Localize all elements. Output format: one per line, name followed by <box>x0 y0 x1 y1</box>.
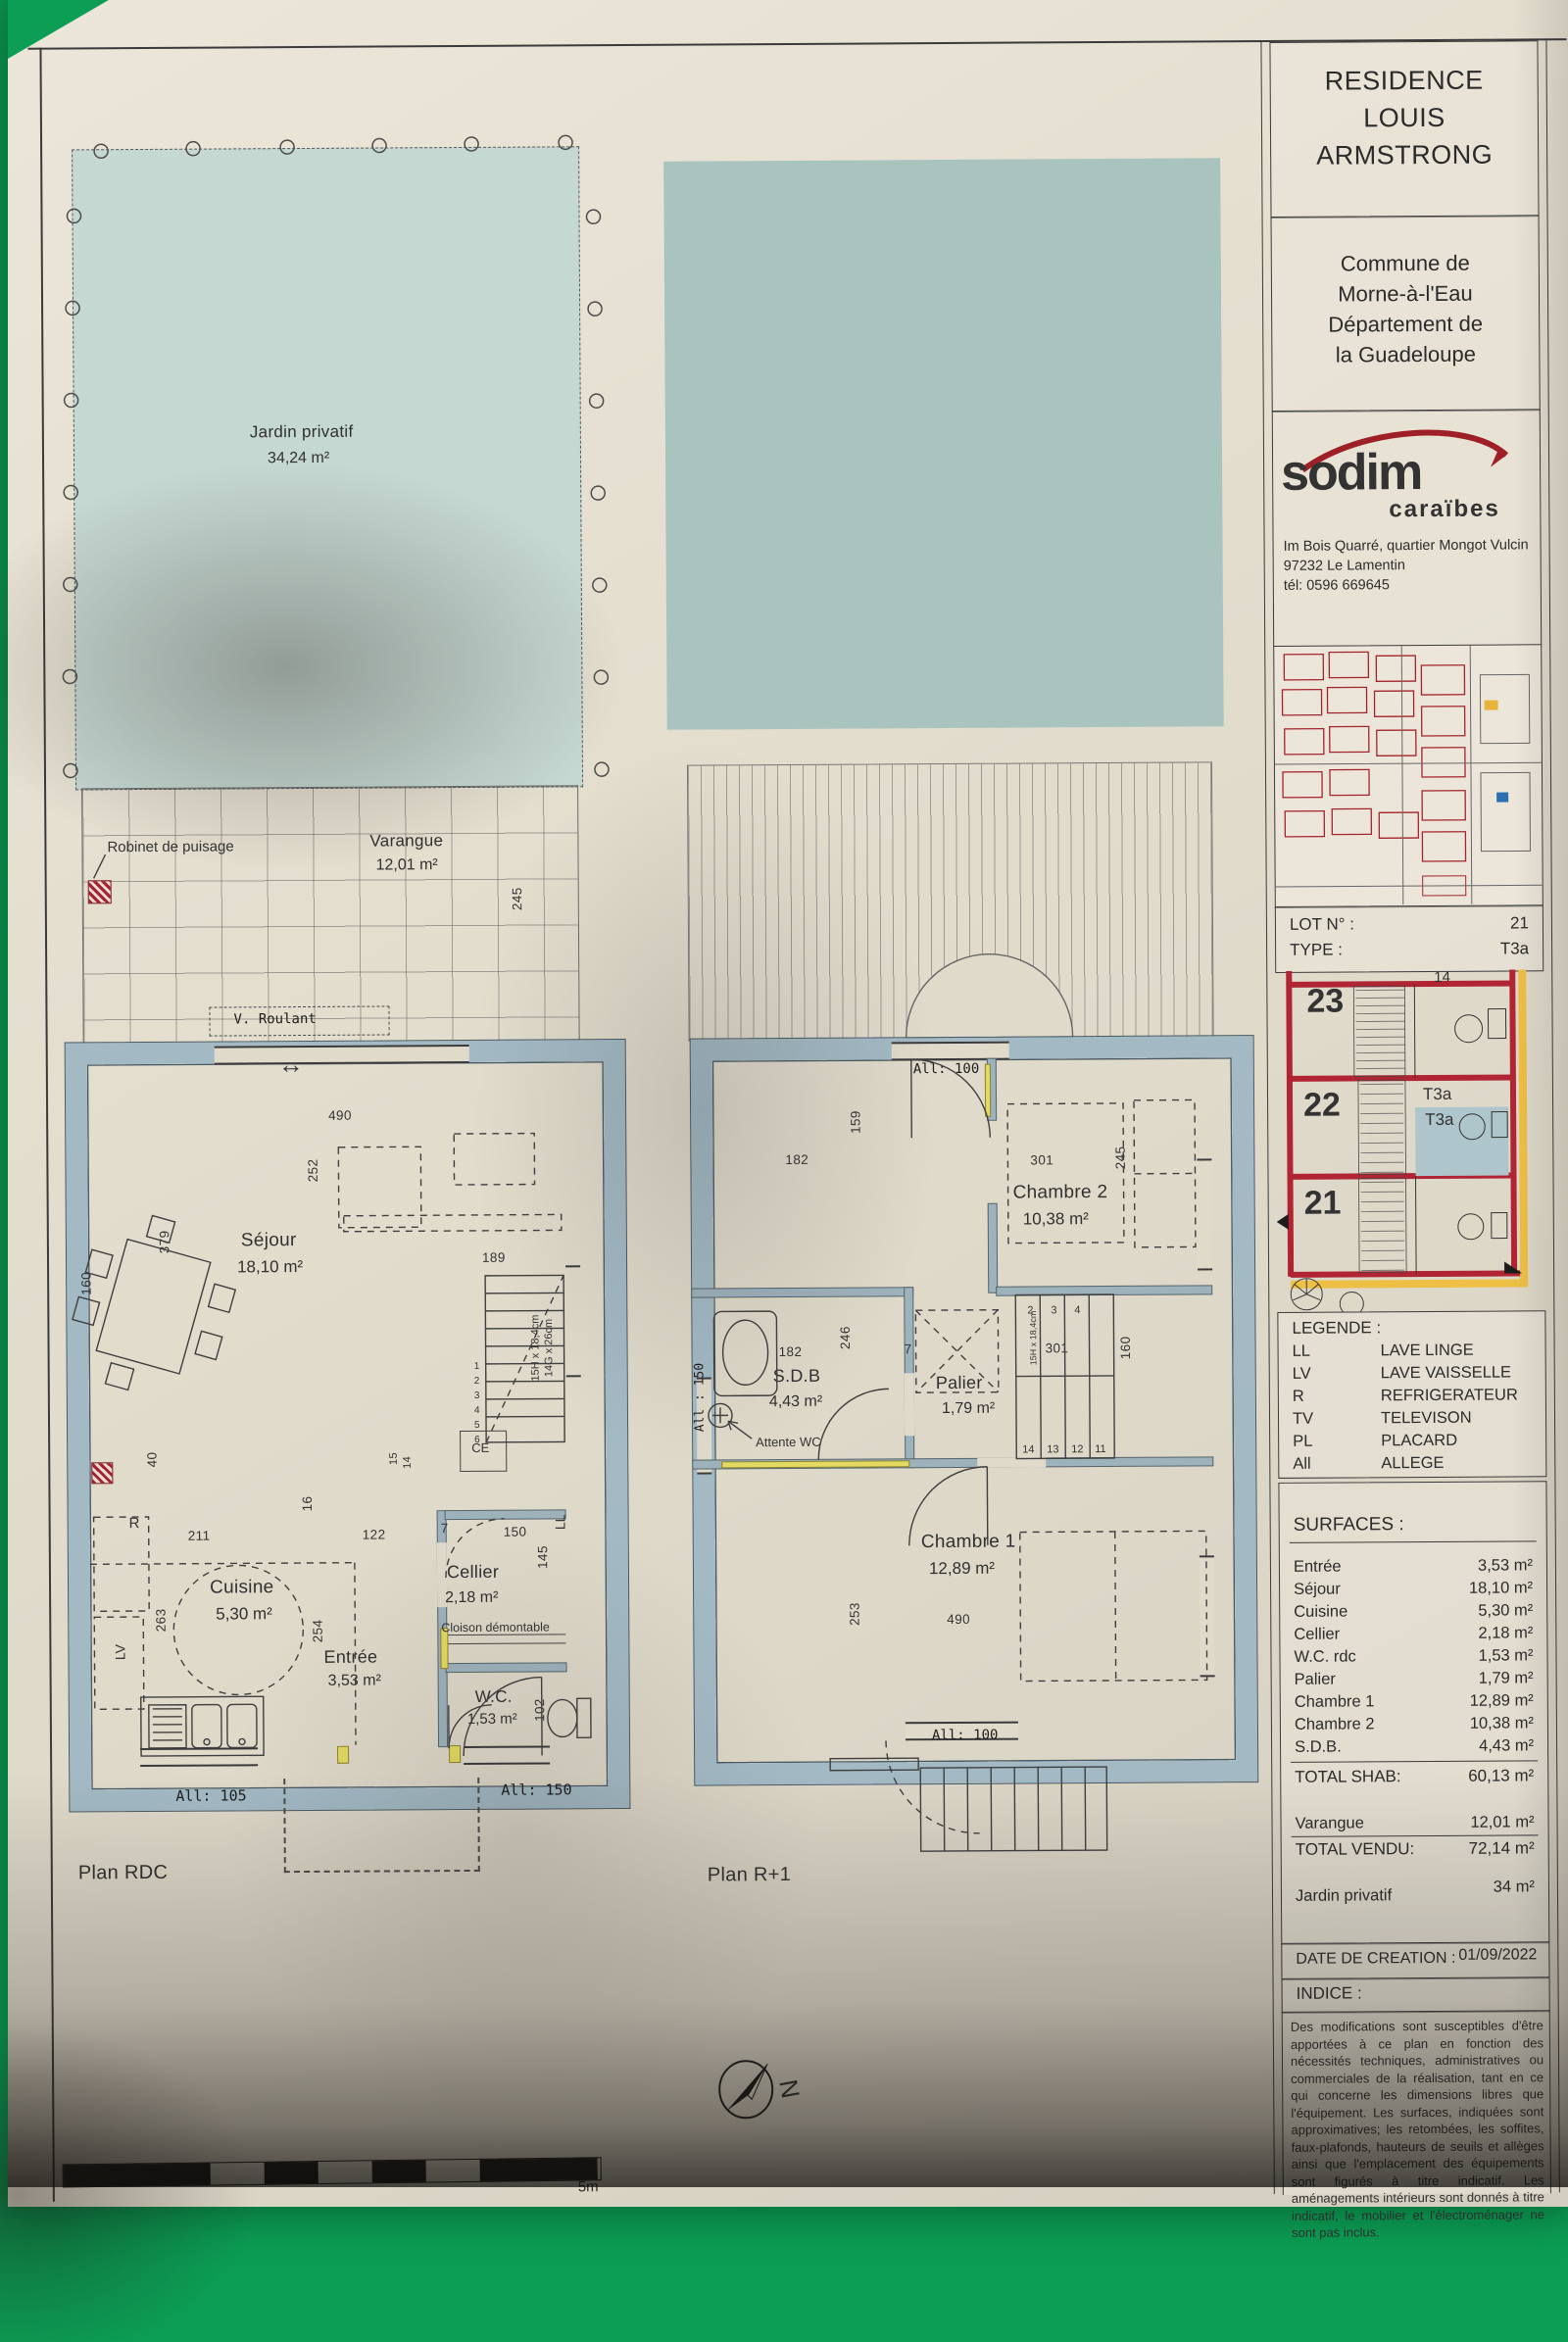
svg-text:sodim: sodim <box>1281 444 1421 502</box>
r1-furniture-layer: 2 3 4 14 13 12 11 <box>675 144 1254 1902</box>
svg-text:21: 21 <box>1304 1185 1342 1222</box>
lot-type-box: LOT N° : 21 TYPE : T3a <box>1275 904 1543 973</box>
indice-box: INDICE : <box>1282 1976 1550 2014</box>
svg-text:23: 23 <box>1306 983 1344 1020</box>
svg-text:11: 11 <box>1095 1443 1105 1455</box>
commune-line: la Guadeloupe <box>1272 338 1539 370</box>
svg-text:14: 14 <box>1022 1443 1034 1455</box>
surface-name: Cellier <box>1294 1626 1340 1643</box>
plan-r1: All: 100 159 182 301 245 Chambre 2 10,38… <box>675 144 1254 1902</box>
legend-label: ALLEGE <box>1381 1454 1444 1473</box>
title-block: RESIDENCE LOUIS ARMSTRONG Commune de Mor… <box>1260 40 1559 2194</box>
total-shab-label: TOTAL SHAB: <box>1295 1767 1400 1786</box>
plan-r1-title: Plan R+1 <box>708 1864 791 1887</box>
varangue-row-label: Varangue <box>1295 1814 1363 1831</box>
varangue-row-value: 12,01 m² <box>1470 1813 1534 1831</box>
site-overview-graphics <box>1274 645 1543 905</box>
total-vendu-label: TOTAL VENDU: <box>1296 1839 1415 1859</box>
surfaces-box: SURFACES : Entrée3,53 m² Séjour18,10 m² … <box>1278 1481 1549 1945</box>
date-label: DATE DE CREATION : <box>1296 1950 1455 1969</box>
svg-text:4: 4 <box>474 1405 480 1416</box>
jardin-row-value: 34 m² <box>1494 1878 1535 1896</box>
commune-line: Département de <box>1272 308 1539 340</box>
legend-code: R <box>1293 1388 1304 1406</box>
sodim-logo: sodim caraïbes <box>1273 417 1541 527</box>
company-address: Im Bois Quarré, quartier Mongot Vulcin 9… <box>1284 535 1529 596</box>
lot-label: LOT N° : <box>1290 914 1354 934</box>
indice-label: INDICE : <box>1297 1983 1362 2003</box>
surface-name: Palier <box>1295 1671 1336 1688</box>
legend-label: LAVE LINGE <box>1381 1342 1474 1361</box>
surface-area: 1,79 m² <box>1479 1669 1534 1687</box>
company-box: sodim caraïbes Im Bois Quarré, quartier … <box>1272 409 1542 648</box>
lot-value: 21 <box>1510 913 1529 933</box>
svg-text:12: 12 <box>1071 1443 1083 1455</box>
surface-name: Entrée <box>1294 1558 1342 1576</box>
commune-line: Commune de <box>1272 247 1539 279</box>
scale-bar <box>63 2157 602 2187</box>
site-plan-zoom: 23 22 21 T3a T3a 14 <box>1267 969 1553 1312</box>
residence-line: RESIDENCE <box>1271 61 1538 100</box>
svg-text:T3a: T3a <box>1423 1085 1452 1103</box>
surface-area: 3,53 m² <box>1478 1556 1533 1575</box>
surface-area: 1,53 m² <box>1479 1646 1534 1665</box>
legend-label: TELEVISON <box>1381 1409 1472 1429</box>
date-value: 01/09/2022 <box>1458 1946 1537 1964</box>
type-value: T3a <box>1500 939 1529 958</box>
svg-text:2: 2 <box>1027 1304 1033 1316</box>
total-shab-value: 60,13 m² <box>1468 1766 1534 1785</box>
legend-label: LAVE VAISSELLE <box>1381 1363 1511 1383</box>
legend-title: LEGENDE : <box>1292 1318 1381 1339</box>
svg-text:4: 4 <box>1074 1304 1080 1316</box>
residence-line: ARMSTRONG <box>1271 135 1538 174</box>
total-vendu-value: 72,14 m² <box>1469 1838 1535 1858</box>
surface-name: Chambre 2 <box>1295 1715 1375 1732</box>
drawing-sheet: Jardin privatif 34,24 m² Robinet de puis… <box>0 0 1568 2202</box>
surface-area: 4,43 m² <box>1479 1736 1534 1755</box>
address-line: tél: 0596 669645 <box>1284 574 1529 596</box>
legend-label: PLACARD <box>1381 1432 1457 1450</box>
surface-area: 2,18 m² <box>1478 1624 1533 1642</box>
svg-text:22: 22 <box>1303 1087 1341 1124</box>
legend-code: All <box>1293 1455 1310 1474</box>
legend-box: LEGENDE : LL LAVE LINGE LV LAVE VAISSELL… <box>1277 1310 1546 1479</box>
date-box: DATE DE CREATION : 01/09/2022 <box>1281 1941 1549 1980</box>
address-line: 97232 Le Lamentin <box>1284 555 1529 576</box>
jardin-row-label: Jardin privatif <box>1296 1886 1392 1905</box>
svg-text:N: N <box>773 2077 806 2101</box>
svg-text:3: 3 <box>1051 1304 1056 1316</box>
site-plan-zoom-graphics: 23 22 21 T3a T3a 14 <box>1267 969 1553 1312</box>
surface-name: S.D.B. <box>1295 1738 1342 1756</box>
photographed-paper-sheet: Jardin privatif 34,24 m² Robinet de puis… <box>8 0 1568 2207</box>
allege-label: All: 105 <box>175 1786 246 1804</box>
svg-text:14: 14 <box>1434 969 1450 986</box>
rdc-furniture-layer: 1 2 3 4 5 6 <box>42 138 602 1905</box>
plan-rdc-title: Plan RDC <box>78 1862 168 1885</box>
legend-code: LV <box>1293 1365 1311 1384</box>
svg-text:1: 1 <box>474 1361 480 1372</box>
svg-text:2: 2 <box>474 1376 480 1387</box>
surface-area: 5,30 m² <box>1478 1601 1533 1620</box>
svg-text:caraïbes: caraïbes <box>1389 496 1500 523</box>
svg-text:T3a: T3a <box>1425 1110 1454 1129</box>
surface-area: 18,10 m² <box>1469 1579 1533 1597</box>
residence-line: LOUIS <box>1271 98 1538 137</box>
disclaimer-text: Des modifications sont susceptibles d'êt… <box>1291 2017 1544 2241</box>
svg-text:3: 3 <box>474 1391 480 1401</box>
type-label: TYPE : <box>1290 941 1343 960</box>
legend-code: TV <box>1293 1410 1313 1429</box>
surface-area: 12,89 m² <box>1470 1691 1534 1710</box>
north-compass-icon: N <box>712 2052 801 2131</box>
site-overview-map <box>1273 644 1543 908</box>
legend-code: LL <box>1293 1342 1310 1361</box>
commune-line: Morne-à-l'Eau <box>1272 277 1539 310</box>
svg-text:13: 13 <box>1047 1443 1058 1455</box>
legend-code: PL <box>1293 1433 1312 1451</box>
plan-rdc: Jardin privatif 34,24 m² Robinet de puis… <box>42 138 602 1905</box>
surface-name: W.C. rdc <box>1294 1647 1355 1665</box>
legend-label: REFRIGERATEUR <box>1381 1386 1518 1405</box>
surface-area: 10,38 m² <box>1470 1714 1534 1732</box>
scale-label: 5m <box>578 2178 599 2195</box>
surfaces-title: SURFACES : <box>1294 1514 1404 1537</box>
allege-label: All: 150 <box>501 1781 571 1798</box>
surface-name: Chambre 1 <box>1295 1692 1375 1710</box>
svg-text:5: 5 <box>474 1420 480 1431</box>
surface-name: Séjour <box>1294 1581 1341 1598</box>
address-line: Im Bois Quarré, quartier Mongot Vulcin <box>1284 535 1529 557</box>
disclaimer-box: Des modifications sont susceptibles d'êt… <box>1282 2010 1551 2195</box>
surface-name: Cuisine <box>1294 1603 1347 1621</box>
commune-box: Commune de Morne-à-l'Eau Département de … <box>1271 215 1541 413</box>
terrace-outline-dashed <box>283 1778 480 1873</box>
svg-text:6: 6 <box>474 1435 480 1445</box>
residence-title-box: RESIDENCE LOUIS ARMSTRONG <box>1269 40 1539 219</box>
